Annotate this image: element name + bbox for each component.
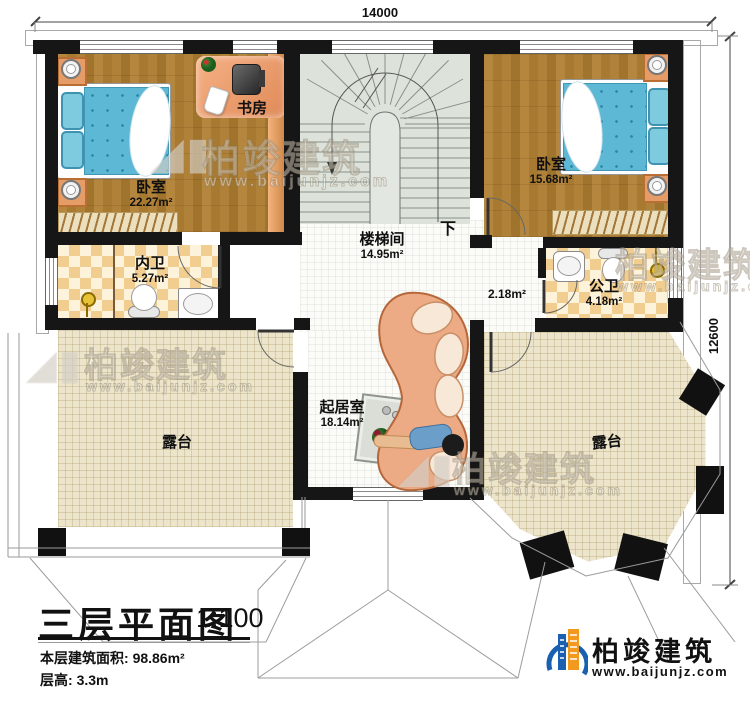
wall [33, 40, 80, 54]
room-label-bath-inner: 内卫 5.27m² [104, 255, 196, 287]
wall [218, 245, 230, 318]
floor-plan-canvas: 卧室 22.27m² 书房 内卫 5.27m² 楼梯间 14.95m² 下 卧室… [0, 0, 750, 701]
floor-area-label: 本层建筑面积: [40, 650, 129, 666]
lamp-icon [647, 176, 667, 196]
sink-icon [183, 293, 213, 315]
dimension-top-width: 14000 [345, 5, 415, 20]
wall [668, 54, 683, 248]
title-underline-thin [38, 642, 250, 643]
wall [543, 237, 680, 248]
room-label-stairwell: 楼梯间 14.95m² [334, 231, 430, 263]
wall [284, 54, 300, 232]
wardrobe-right [552, 210, 670, 235]
terrace-left-post-a [38, 528, 66, 556]
window [520, 40, 633, 54]
wall [535, 318, 680, 332]
wall [470, 320, 484, 500]
wall [423, 487, 484, 500]
room-label-bath-public: 公卫 4.18m² [558, 278, 650, 310]
floor-height-label: 层高: [40, 672, 73, 688]
wall [293, 372, 308, 497]
floor-height-value: 3.3m [77, 672, 109, 688]
wall [433, 40, 520, 54]
shower-hose [86, 303, 88, 317]
brand-logo-icon [546, 626, 588, 684]
room-label-study: 书房 [224, 100, 280, 118]
terrace-left-floor [58, 330, 293, 527]
brand-url: www.baijunjz.com [592, 664, 728, 679]
terrace-right-post-d [520, 530, 575, 579]
floor-area-value: 98.86m² [133, 650, 185, 666]
brand-logo [546, 626, 588, 689]
shower-head-icon [81, 292, 96, 307]
wall [470, 235, 492, 248]
lamp-icon [61, 59, 81, 79]
wall [293, 487, 353, 500]
wall [633, 40, 683, 54]
wall [277, 40, 332, 54]
terrace-left-post-b [282, 528, 310, 556]
wall [220, 232, 302, 245]
room-label-terrace-left: 露台 [146, 434, 208, 452]
sink-icon [557, 256, 581, 276]
shower-head-icon [650, 263, 665, 278]
lamp-icon [647, 55, 667, 75]
window [233, 40, 277, 54]
table-cup-icon [392, 411, 400, 419]
room-label-living: 起居室 18.14m² [296, 399, 388, 431]
floor-area-line: 本层建筑面积: 98.86m² [40, 648, 185, 668]
window [45, 258, 58, 305]
wall [45, 232, 182, 245]
wall [45, 318, 256, 330]
window [80, 40, 183, 54]
wall [45, 54, 58, 258]
title-underline [38, 637, 250, 640]
window [332, 40, 433, 54]
room-label-bedroom-left: 卧室 22.27m² [105, 179, 197, 211]
desk-monitor-stand [259, 70, 265, 87]
window [353, 487, 423, 501]
dimension-right-height: 12600 [706, 318, 721, 354]
lamp-icon [61, 180, 81, 200]
stairwell-floor [300, 54, 470, 224]
wall [183, 40, 233, 54]
toilet-icon [131, 284, 157, 311]
pillow [61, 92, 84, 130]
window [669, 248, 682, 298]
scale-label: 1:100 [196, 603, 264, 634]
room-label-bedroom-right: 卧室 15.68m² [505, 156, 597, 188]
wall [538, 248, 546, 278]
room-label-corridor-area: 2.18m² [478, 287, 536, 301]
wall [294, 318, 310, 330]
wall [470, 54, 484, 198]
pillow [61, 131, 84, 169]
desk-plant-icon [201, 57, 216, 72]
shower-hose [655, 248, 657, 263]
terrace-right-post-b [696, 466, 724, 514]
desk-monitor-icon [232, 64, 261, 95]
stair-down-label: 下 [437, 220, 459, 239]
floor-height-line: 层高: 3.3m [40, 670, 108, 690]
